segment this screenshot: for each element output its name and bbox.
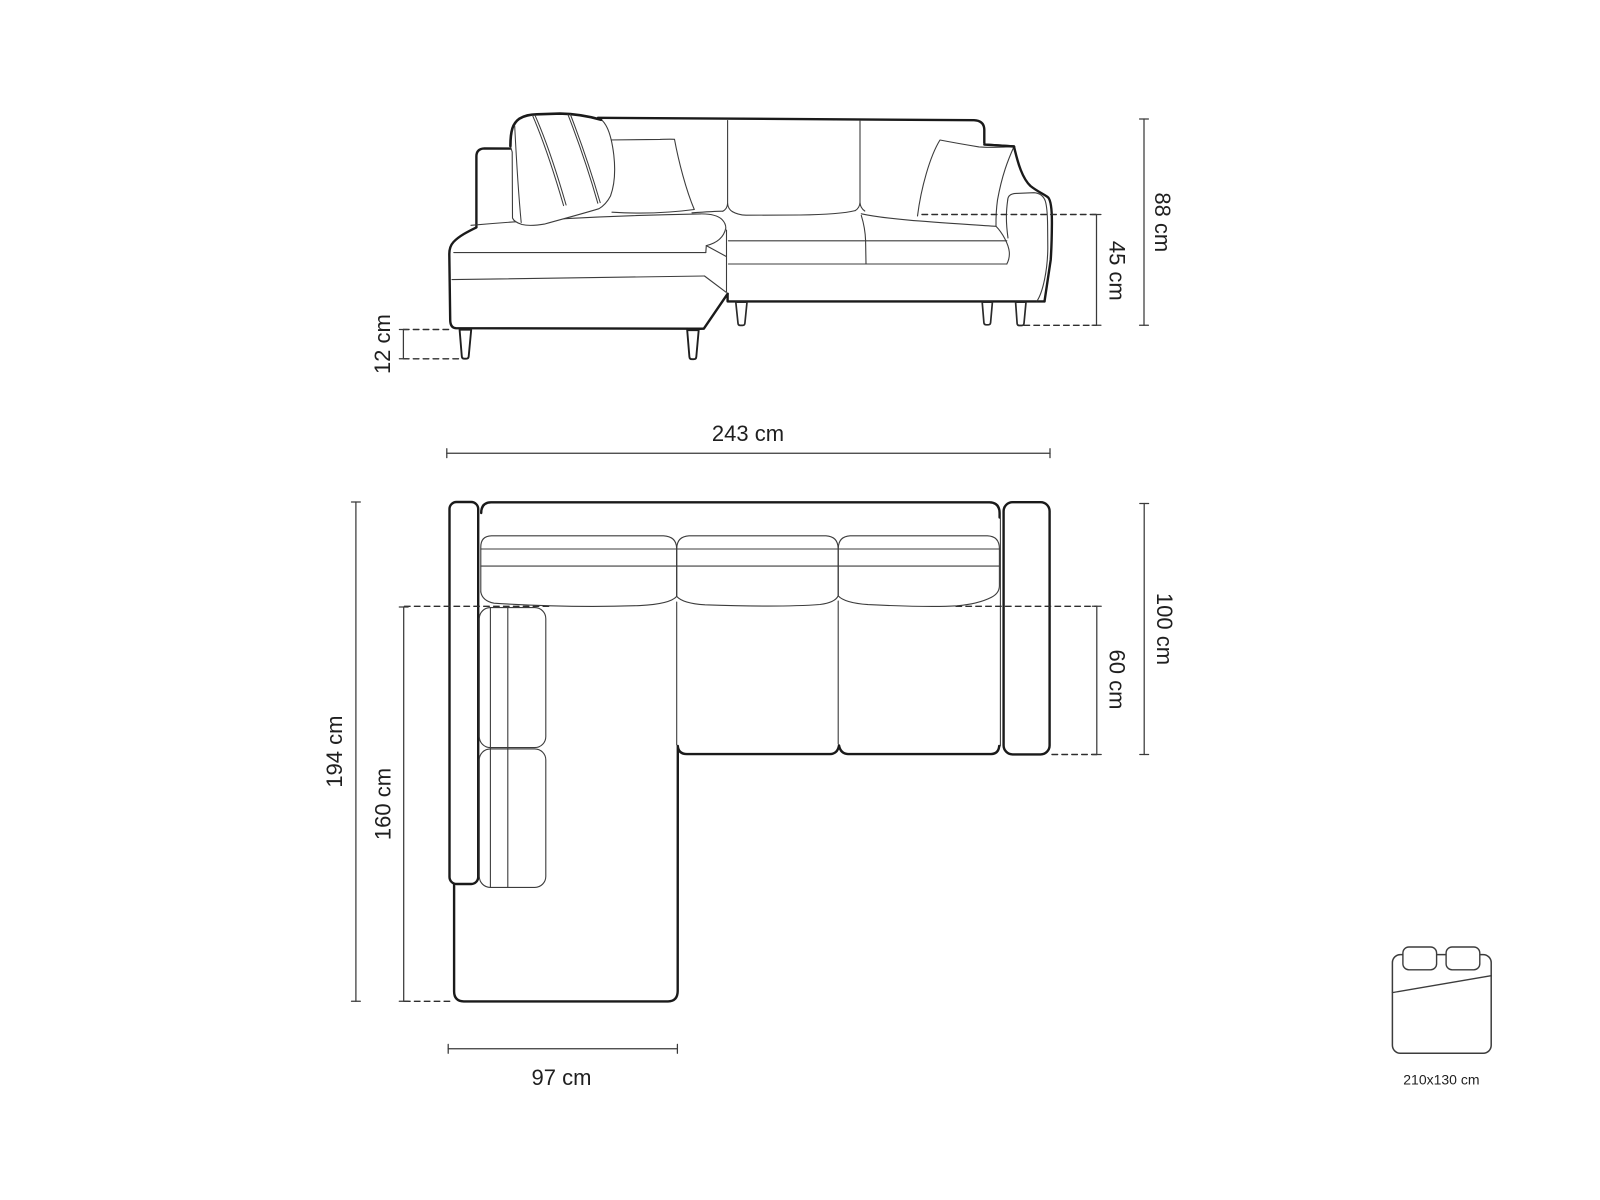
svg-text:194 cm: 194 cm [322,716,347,788]
svg-text:210x130 cm: 210x130 cm [1403,1072,1479,1088]
svg-text:45 cm: 45 cm [1105,241,1130,301]
svg-text:97 cm: 97 cm [532,1065,592,1090]
svg-text:243 cm: 243 cm [712,421,784,446]
svg-text:12 cm: 12 cm [370,314,395,374]
svg-text:100 cm: 100 cm [1152,593,1177,665]
svg-text:88 cm: 88 cm [1150,192,1175,252]
svg-text:160 cm: 160 cm [371,768,396,840]
svg-text:60 cm: 60 cm [1105,650,1130,710]
